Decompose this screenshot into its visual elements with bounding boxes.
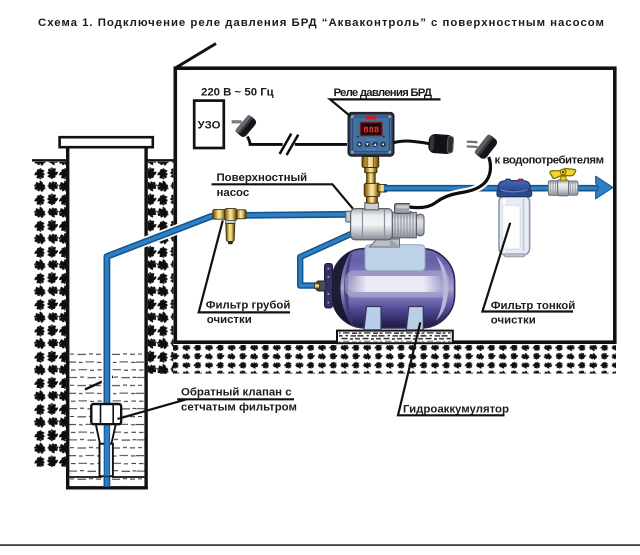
svg-text:Поверхностный: Поверхностный	[217, 172, 308, 184]
svg-text:очистки: очистки	[491, 314, 536, 326]
svg-text:очистки: очистки	[207, 314, 252, 326]
svg-text:насос: насос	[217, 187, 250, 199]
svg-text:Обратный клапан с: Обратный клапан с	[181, 386, 292, 398]
svg-text:Гидроаккумулятор: Гидроаккумулятор	[403, 403, 509, 415]
svg-text:220 В ~ 50 Гц: 220 В ~ 50 Гц	[201, 87, 274, 99]
svg-text:Фильтр грубой: Фильтр грубой	[206, 299, 291, 311]
svg-text:Реле давления БРД: Реле давления БРД	[334, 87, 433, 99]
svg-text:к водопотребителям: к водопотребителям	[495, 155, 605, 167]
svg-text:сетчатым фильтром: сетчатым фильтром	[181, 402, 297, 414]
svg-text:Схема 1. Подключение реле давл: Схема 1. Подключение реле давления БРД “…	[38, 17, 604, 29]
svg-text:УЗО: УЗО	[198, 120, 221, 132]
svg-text:888: 888	[363, 126, 379, 136]
